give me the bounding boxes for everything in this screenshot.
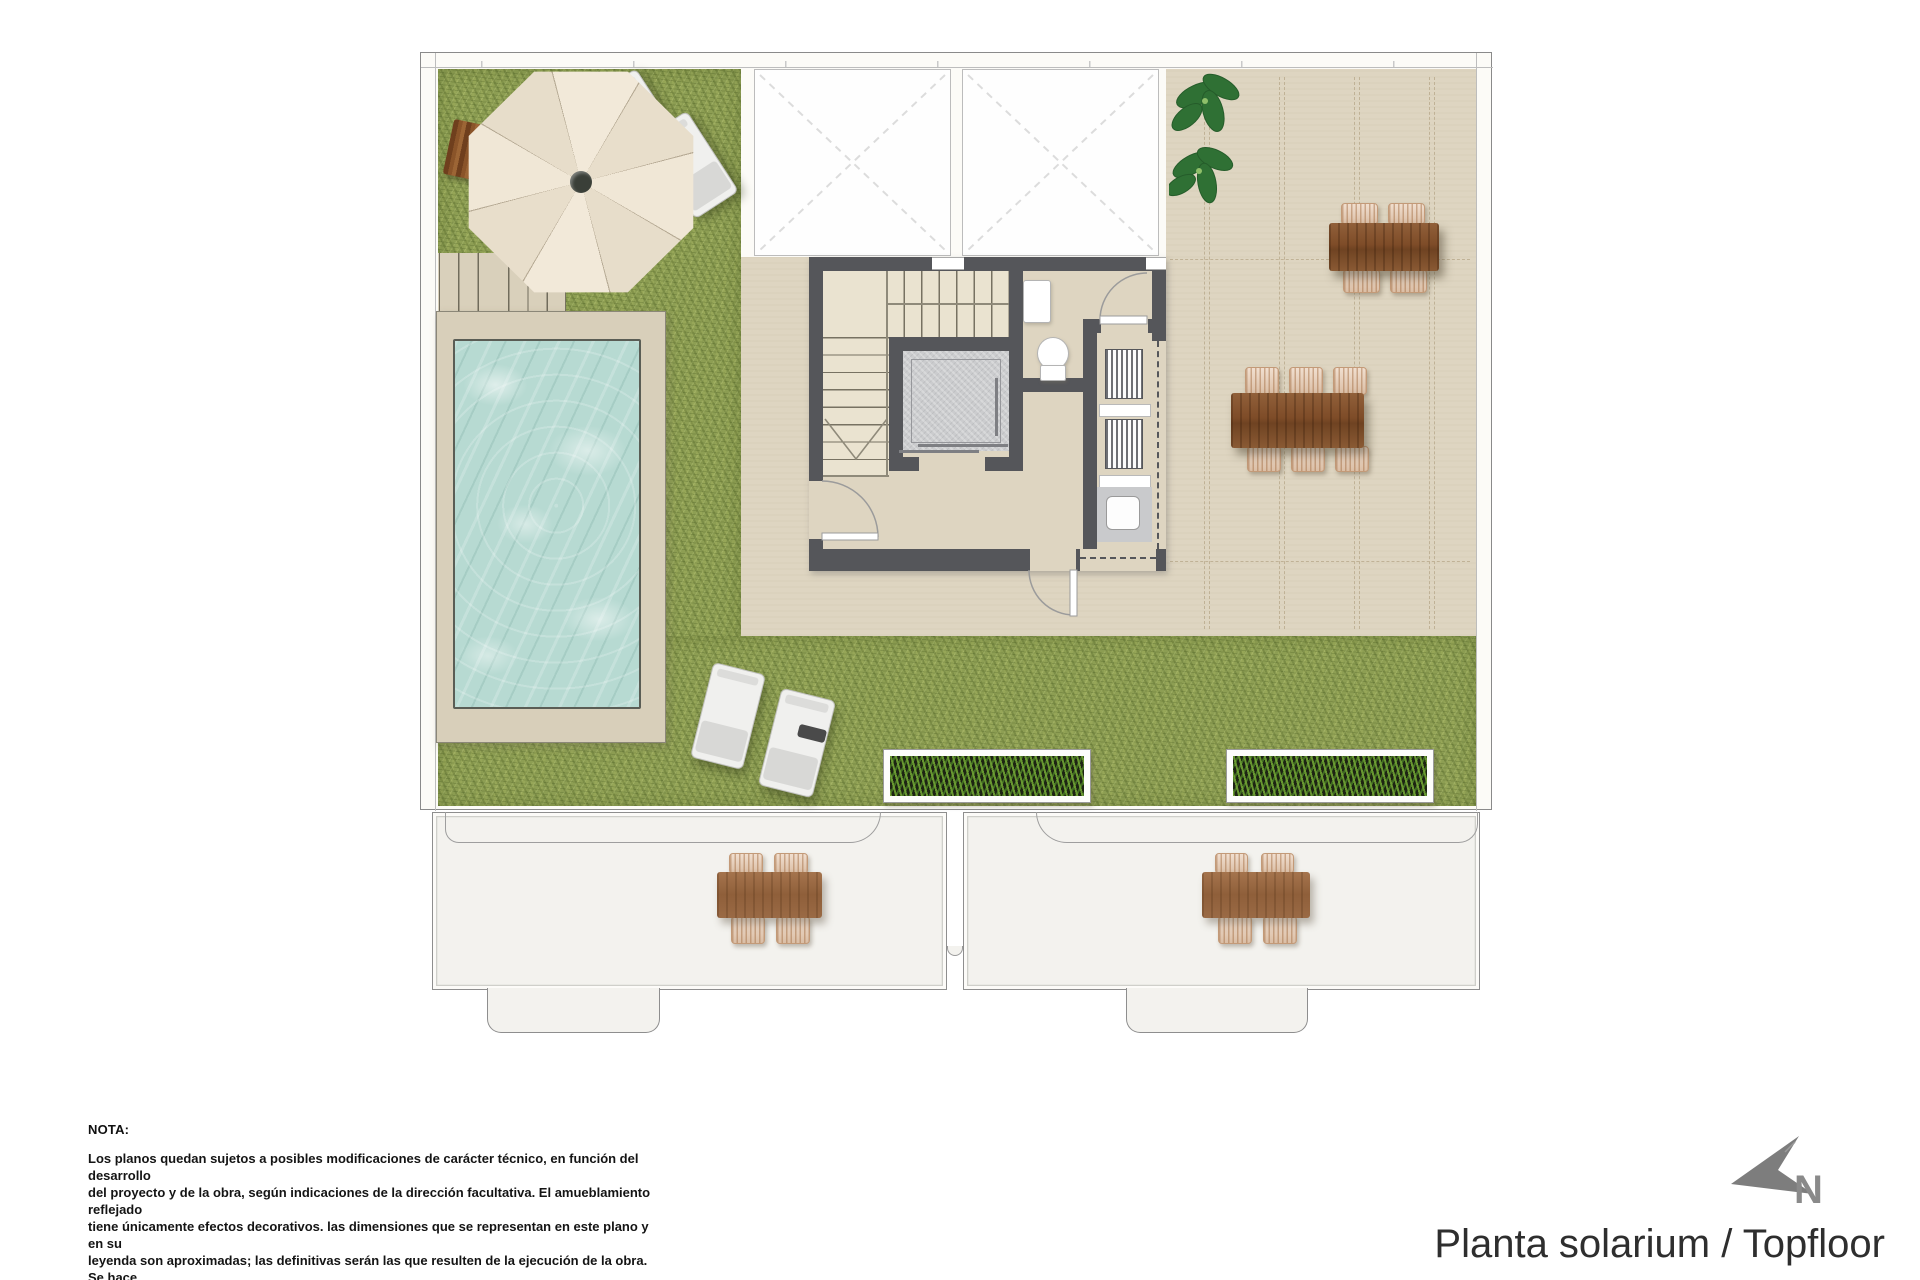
note-heading: NOTA: [88,1122,129,1137]
dining-table [1202,872,1310,918]
dining-table [717,872,822,918]
terrace-notch [487,988,660,1033]
dining-chair [776,916,810,944]
note-body: Los planos quedan sujetos a posibles mod… [88,1150,653,1280]
dining-chair [1261,853,1294,874]
terrace-overhang-line [1036,812,1478,843]
dining-chair [1218,916,1252,944]
north-label: N [1794,1168,1823,1213]
terrace-overhang-line [445,812,881,843]
dining-chair [1215,853,1248,874]
dining-chair [1263,916,1297,944]
dining-chair [729,853,763,874]
dining-chair [774,853,808,874]
terrace-notch [1126,988,1308,1033]
door-swings [0,0,1920,1280]
page-title: Planta solarium / Topfloor [1385,1222,1885,1267]
dining-chair [731,916,765,944]
floorplan-sheet: NOTA: Los planos quedan sujetos a posibl… [0,0,1920,1280]
